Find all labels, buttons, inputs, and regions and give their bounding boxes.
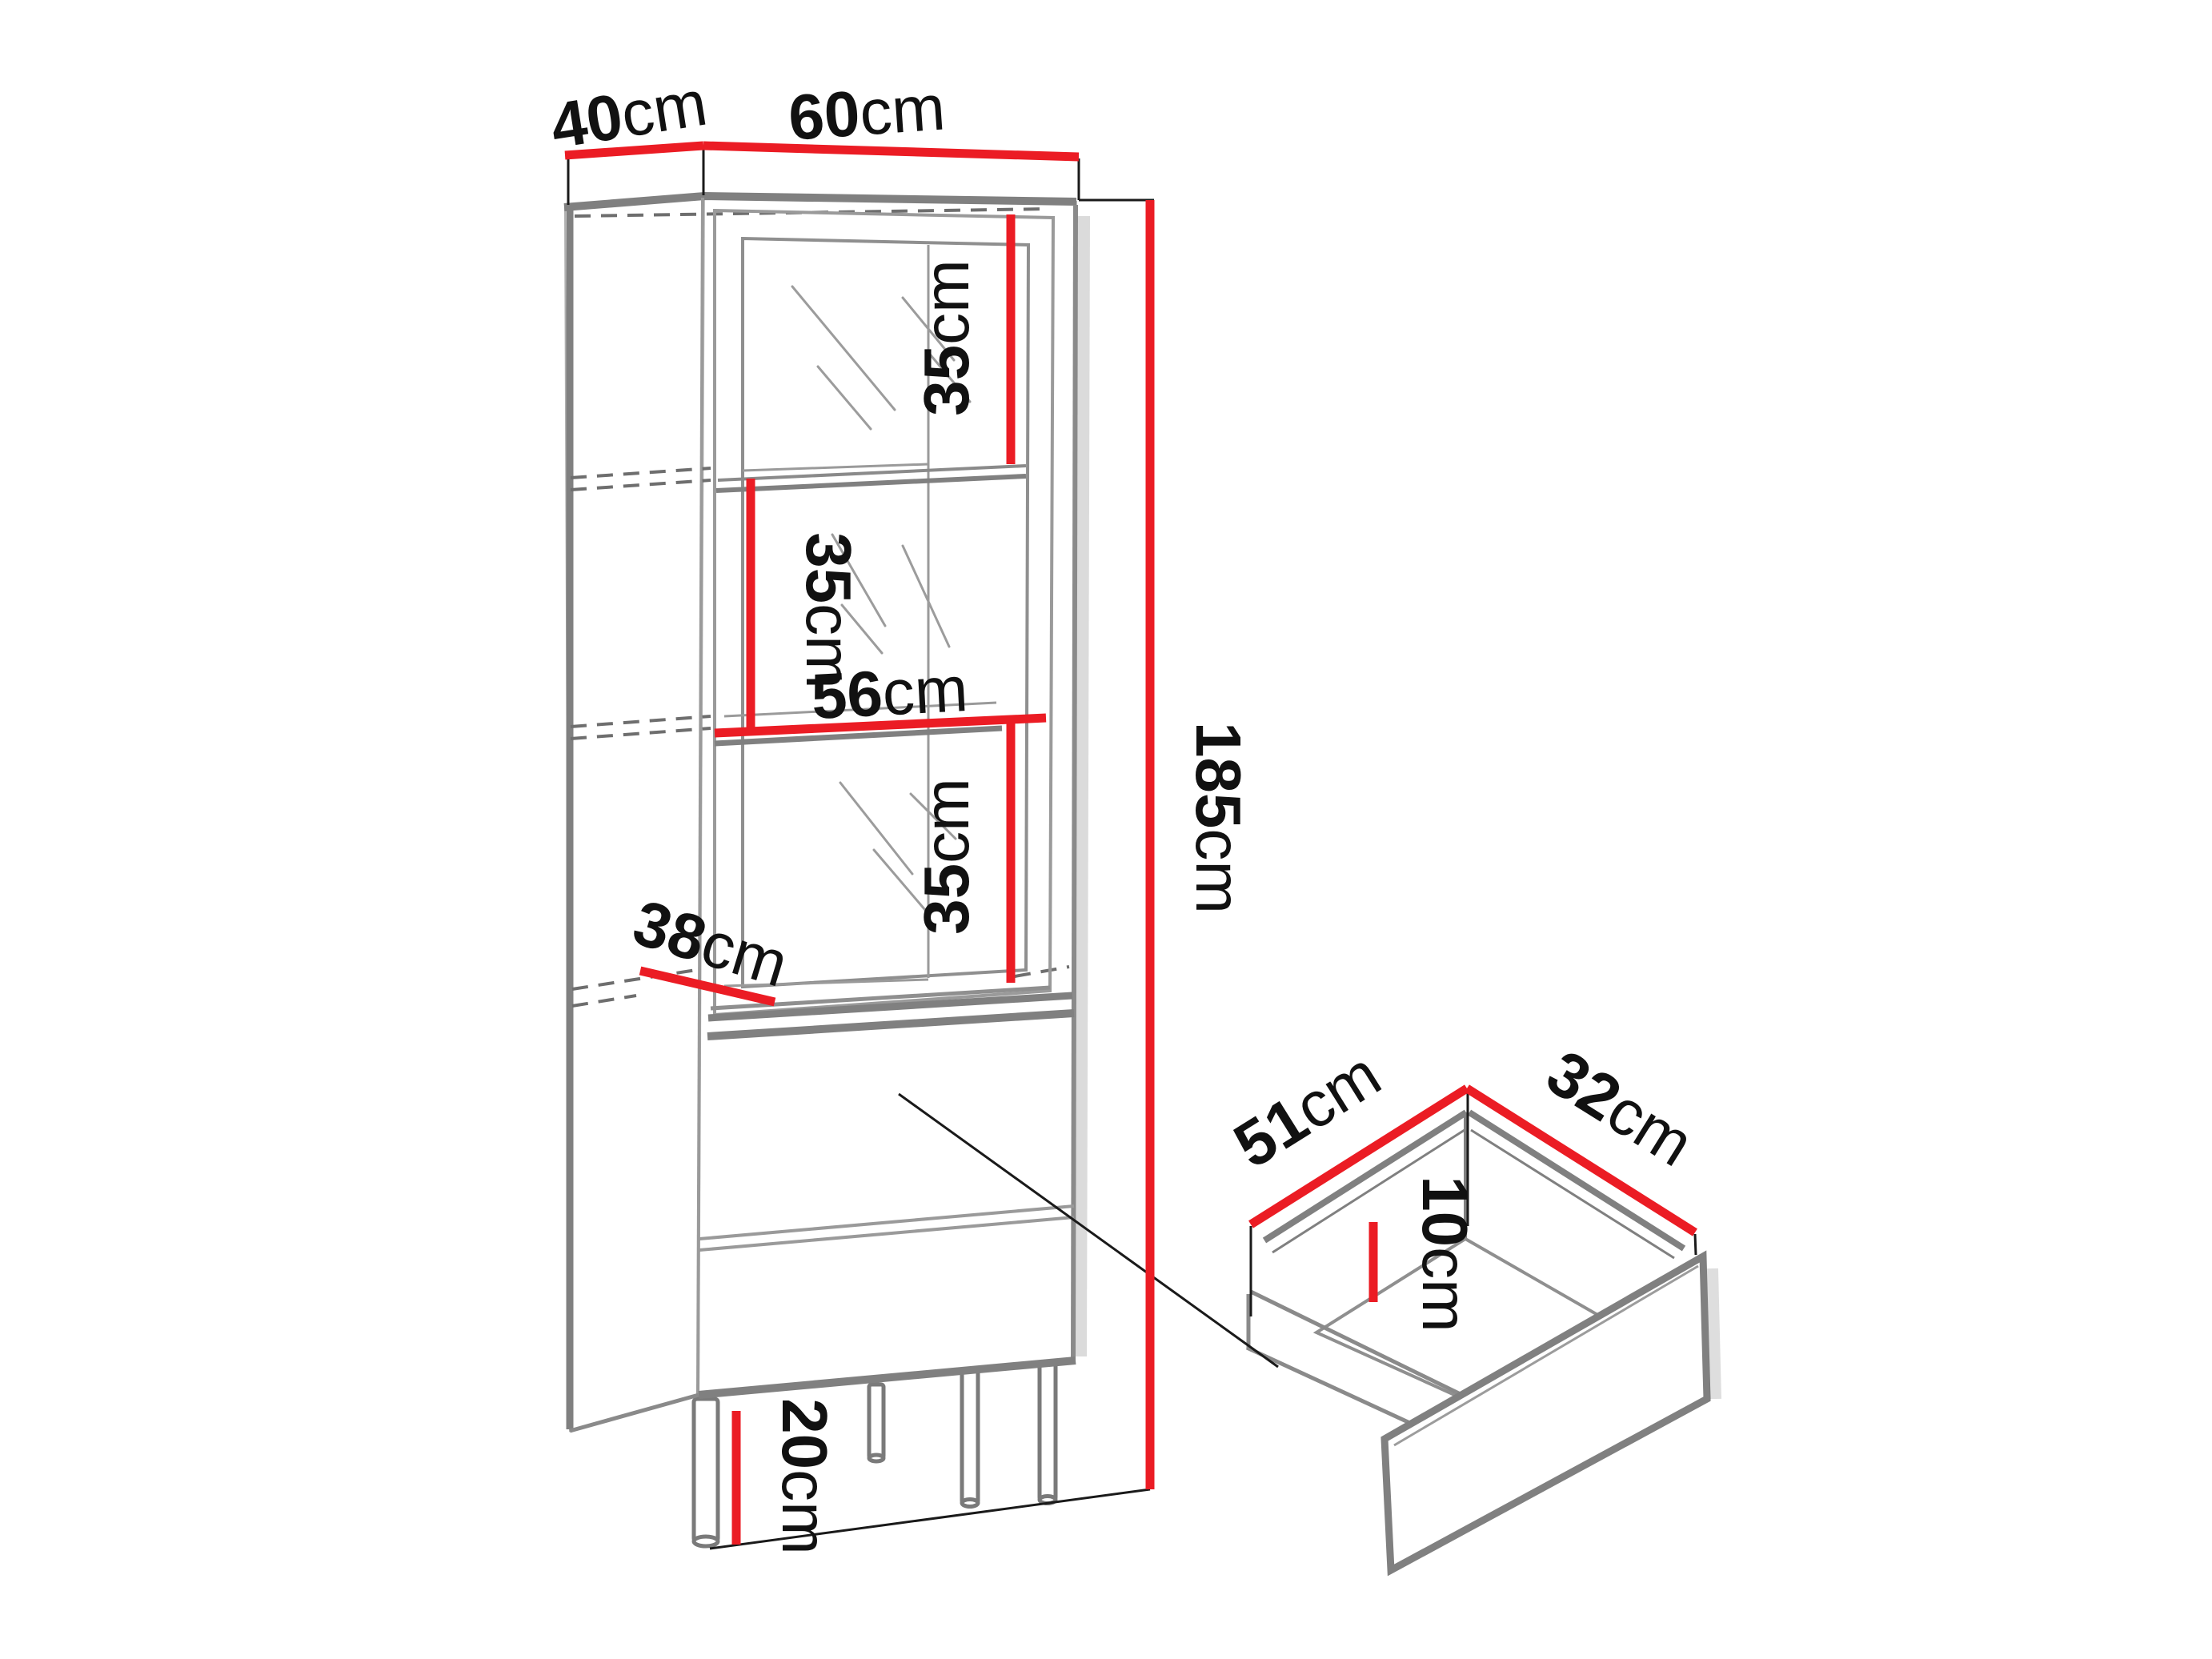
leg-back-left bbox=[869, 1385, 884, 1458]
cabinet-side-face bbox=[565, 196, 704, 1431]
diagram-page: 40cm 60cm 35cm 35cm 56cm 35cm 38cm 185cm… bbox=[0, 0, 2212, 1659]
dim-line-60cm bbox=[703, 146, 1079, 157]
leg-front-right bbox=[1040, 1362, 1056, 1500]
cabinet-front-face bbox=[699, 196, 1076, 1395]
label-20cm: 20cm bbox=[769, 1398, 840, 1555]
cabinet-body bbox=[564, 196, 1083, 1546]
label-35cm-bottom: 35cm bbox=[911, 778, 982, 935]
cabinet-right-edge bbox=[1073, 205, 1076, 1360]
label-35cm-top: 35cm bbox=[911, 259, 982, 416]
label-185cm: 185cm bbox=[1183, 722, 1254, 914]
drawer-panel-shadow bbox=[1713, 1268, 1716, 1399]
cabinet-right-shadow bbox=[1080, 216, 1083, 1356]
label-56cm: 56cm bbox=[810, 653, 970, 732]
furniture-dimension-diagram: 40cm 60cm 35cm 35cm 56cm 35cm 38cm 185cm… bbox=[0, 0, 2212, 1659]
label-60cm: 60cm bbox=[786, 71, 947, 153]
label-10cm: 10cm bbox=[1409, 1176, 1481, 1332]
leg-back-right bbox=[962, 1369, 978, 1503]
leg-front-left bbox=[694, 1399, 718, 1541]
